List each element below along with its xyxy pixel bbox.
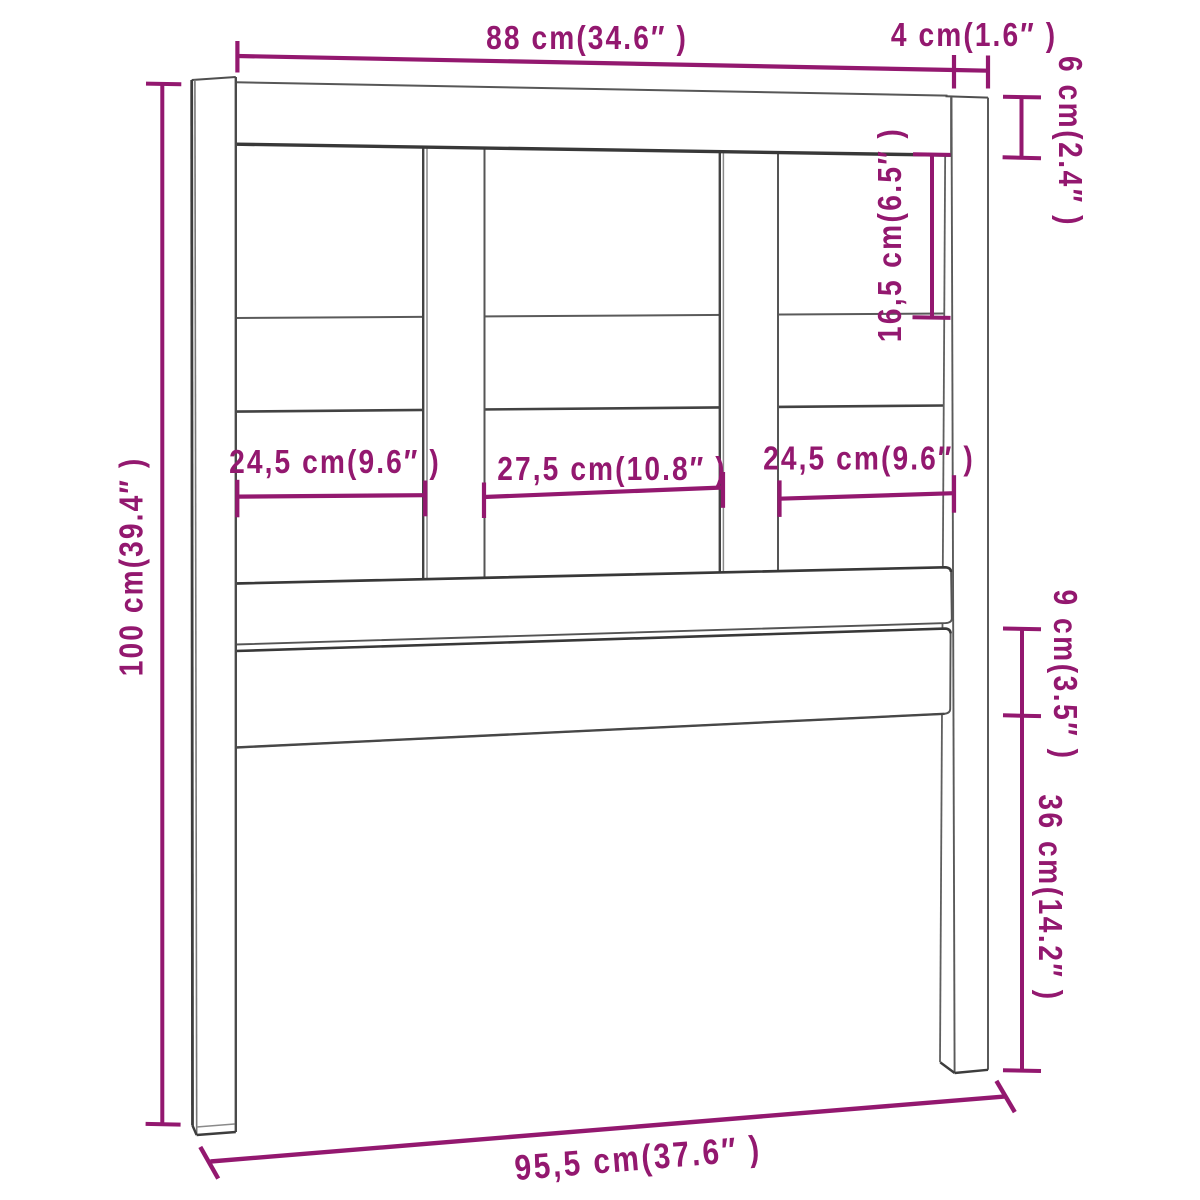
svg-text:36 cm(14.2″ ): 36 cm(14.2″ ) [1031, 794, 1069, 1001]
svg-text:16,5 cm(6.5″ ): 16,5 cm(6.5″ ) [871, 127, 909, 342]
svg-text:27,5 cm(10.8″ ): 27,5 cm(10.8″ ) [497, 450, 726, 488]
svg-text:24,5 cm(9.6″ ): 24,5 cm(9.6″ ) [229, 443, 441, 481]
svg-text:6 cm(2.4″ ): 6 cm(2.4″ ) [1051, 56, 1089, 227]
svg-text:9 cm(3.5″ ): 9 cm(3.5″ ) [1046, 590, 1084, 761]
svg-text:24,5 cm(9.6″ ): 24,5 cm(9.6″ ) [763, 439, 975, 477]
svg-text:88 cm(34.6″ ): 88 cm(34.6″ ) [486, 19, 688, 57]
svg-text:4 cm(1.6″ ): 4 cm(1.6″ ) [891, 15, 1057, 53]
svg-text:100 cm(39.4″ ): 100 cm(39.4″ ) [112, 457, 150, 677]
